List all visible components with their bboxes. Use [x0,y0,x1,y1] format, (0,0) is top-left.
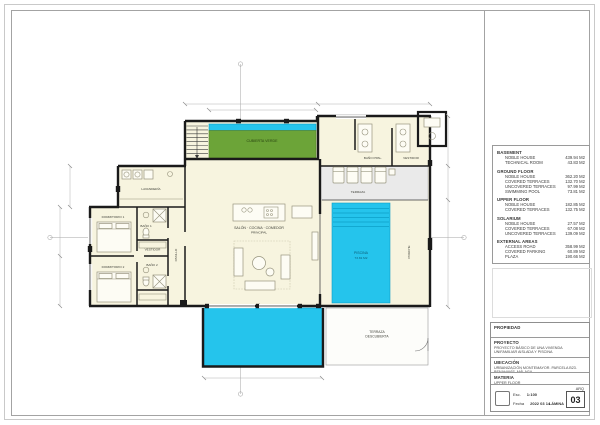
schedule-row: COVERED TERRACES132.75 M2 [497,207,585,212]
schedule-row: TECHNICAL ROOM43.83 M2 [497,160,585,165]
sheet-number: 03 [566,391,585,408]
label-pool: PISCINA [354,251,369,255]
schedule-row-label: PLAZA [505,254,518,259]
label-dressing-2: VESTIDOR [403,156,420,160]
label-living: SALÓN · COCINA · COMEDOR [234,225,284,230]
lamina-label: LÁMINA [549,401,564,406]
scale-row: Esc.1:100 [513,392,537,397]
label-laundry: LAVANDERÍA [141,187,161,191]
schedule-row-label: SWIMMING POOL [505,189,540,194]
label-bath-2: BAÑO 2 [146,262,158,267]
schedule-row: UNCOVERED TERRACES139.09 M2 [497,231,585,236]
bedroom-1-furniture [97,222,131,252]
materia-label: MATERIA [494,375,586,380]
titleblock-materia: MATERIA UPPER FLOOR [491,372,589,384]
titleblock-propiedad: PROPIEDAD [491,323,589,337]
scale-value: 1:100 [527,392,537,397]
label-bottom-terrace-2: DESCUBIERTA [365,335,389,339]
ubicacion-label: UBICACIÓN [494,360,586,365]
sun-loungers [333,167,395,183]
label-green-roof: CUBIERTA VERDE [246,139,278,143]
titleblock-footer: Esc.1:100 Fecha2022 03 14 ARQ LÁMINA 03 [491,384,589,411]
schedule-row-value: 139.09 M2 [565,231,585,236]
label-terrace: TERRAZA [351,190,366,194]
schedule-row-value: 132.75 M2 [565,207,585,212]
kitchen-island [233,204,285,221]
label-dressing-1: VESTIDOR [145,248,162,252]
scale-label: Esc. [513,392,521,397]
schedule-row-label: TECHNICAL ROOM [505,160,543,165]
label-bath-1: BAÑO 1 [140,223,152,228]
label-porch: PORCHE [407,245,411,258]
water-channel [209,124,316,131]
titleblock-ubicacion: UBICACIÓN URBANIZACIÓN MONTEMAYOR. PARCE… [491,357,589,372]
schedule-row: SWIMMING POOL73.81 M2 [497,189,585,194]
schedule-row-label: UNCOVERED TERRACES [505,231,556,236]
label-bedroom-1: DORMITORIO 1 [102,215,125,219]
swimming-pool-bottom [203,308,323,367]
schedule-row-value: 190.66 M2 [565,254,585,259]
label-bedroom-2: DORMITORIO 2 [102,265,125,269]
titleblock-proyecto: PROYECTO PROYECTO BÁSICO DE UNA VIVIENDA… [491,337,589,357]
propiedad-label: PROPIEDAD [494,325,586,330]
label-bottom-terrace-1: TERRAZA [369,330,385,334]
area-schedule: BASEMENTNOBLE HOUSE439.94 M2TECHNICAL RO… [492,145,590,264]
label-pool-area: 73.81 M2 [355,256,368,260]
area-schedule-body: BASEMENTNOBLE HOUSE439.94 M2TECHNICAL RO… [497,150,585,259]
date-value: 2022 03 14 [530,401,550,406]
label-master-bath: BAÑO PPAL. [364,155,382,160]
proyecto-label: PROYECTO [494,340,586,345]
date-label: Fecha [513,401,524,406]
proyecto-text: PROYECTO BÁSICO DE UNA VIVIENDA UNIFAMIL… [494,346,586,355]
empty-schedule-box [492,268,592,318]
schedule-row: PLAZA190.66 M2 [497,254,585,259]
title-block: PROPIEDAD PROYECTO PROYECTO BÁSICO DE UN… [490,322,590,412]
schedule-row-label: COVERED TERRACES [505,207,550,212]
schedule-row-value: 73.81 M2 [568,189,585,194]
arq-label: ARQ [576,387,584,391]
date-row: Fecha2022 03 14 [513,401,550,406]
architect-logo [495,391,510,406]
label-living-2: PRINCIPAL [251,231,267,235]
bedroom-2-furniture [97,272,131,302]
schedule-row-value: 43.83 M2 [568,160,585,165]
label-corridor: PASILLO [174,248,178,261]
